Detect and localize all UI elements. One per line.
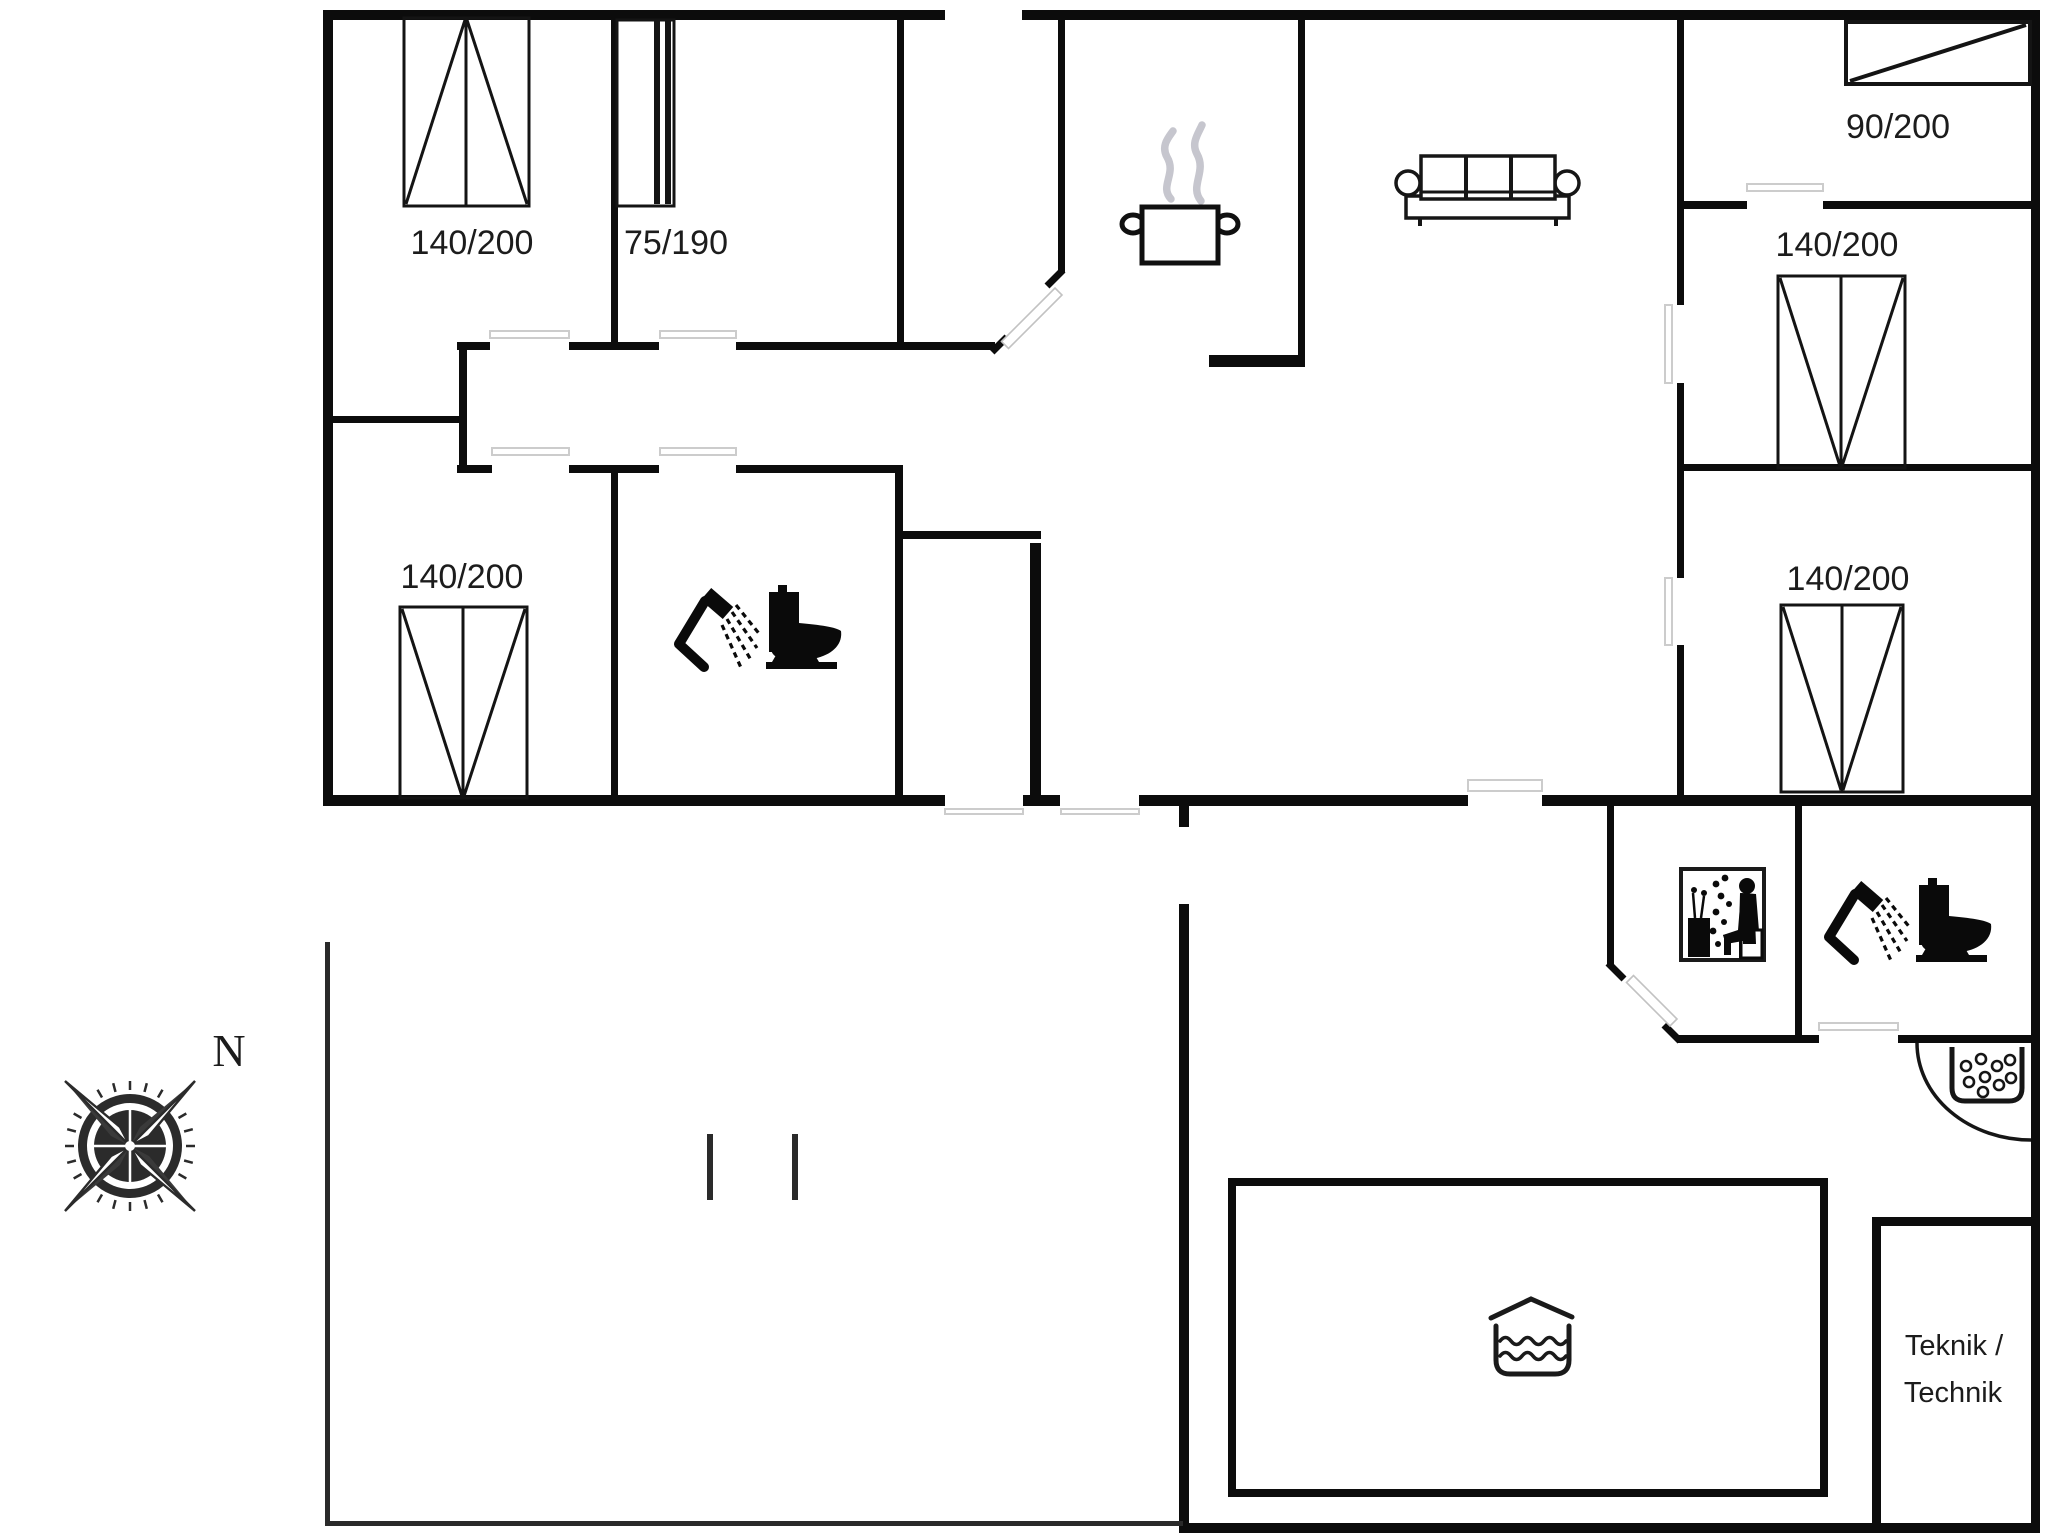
svg-text:140/200: 140/200 bbox=[1776, 226, 1899, 264]
svg-text:Teknik /: Teknik / bbox=[1905, 1330, 2004, 1362]
svg-text:N: N bbox=[212, 1025, 245, 1076]
svg-text:140/200: 140/200 bbox=[1787, 560, 1910, 598]
svg-text:Technik: Technik bbox=[1904, 1377, 2003, 1409]
svg-text:140/200: 140/200 bbox=[401, 558, 524, 596]
svg-text:75/190: 75/190 bbox=[624, 224, 728, 262]
svg-text:140/200: 140/200 bbox=[411, 224, 534, 262]
svg-text:90/200: 90/200 bbox=[1846, 108, 1950, 146]
